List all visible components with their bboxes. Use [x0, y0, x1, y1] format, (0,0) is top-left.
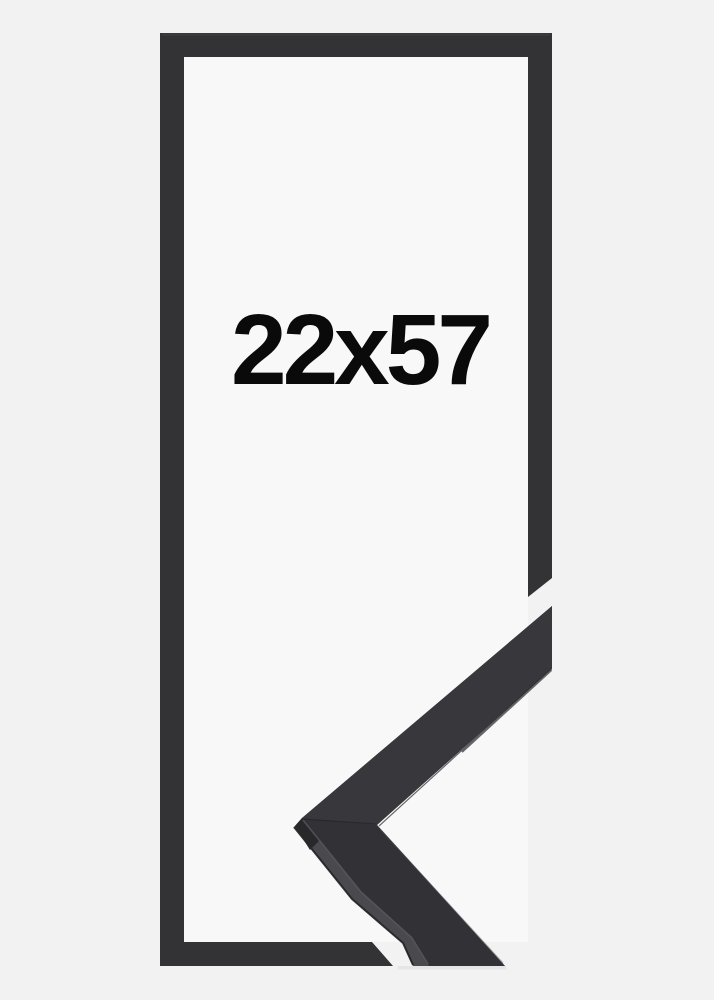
size-label: 22x57	[160, 280, 556, 420]
corner-detail-shadow	[398, 966, 506, 970]
product-image: 22x57	[0, 0, 714, 1000]
frame-illustration	[0, 0, 714, 1000]
